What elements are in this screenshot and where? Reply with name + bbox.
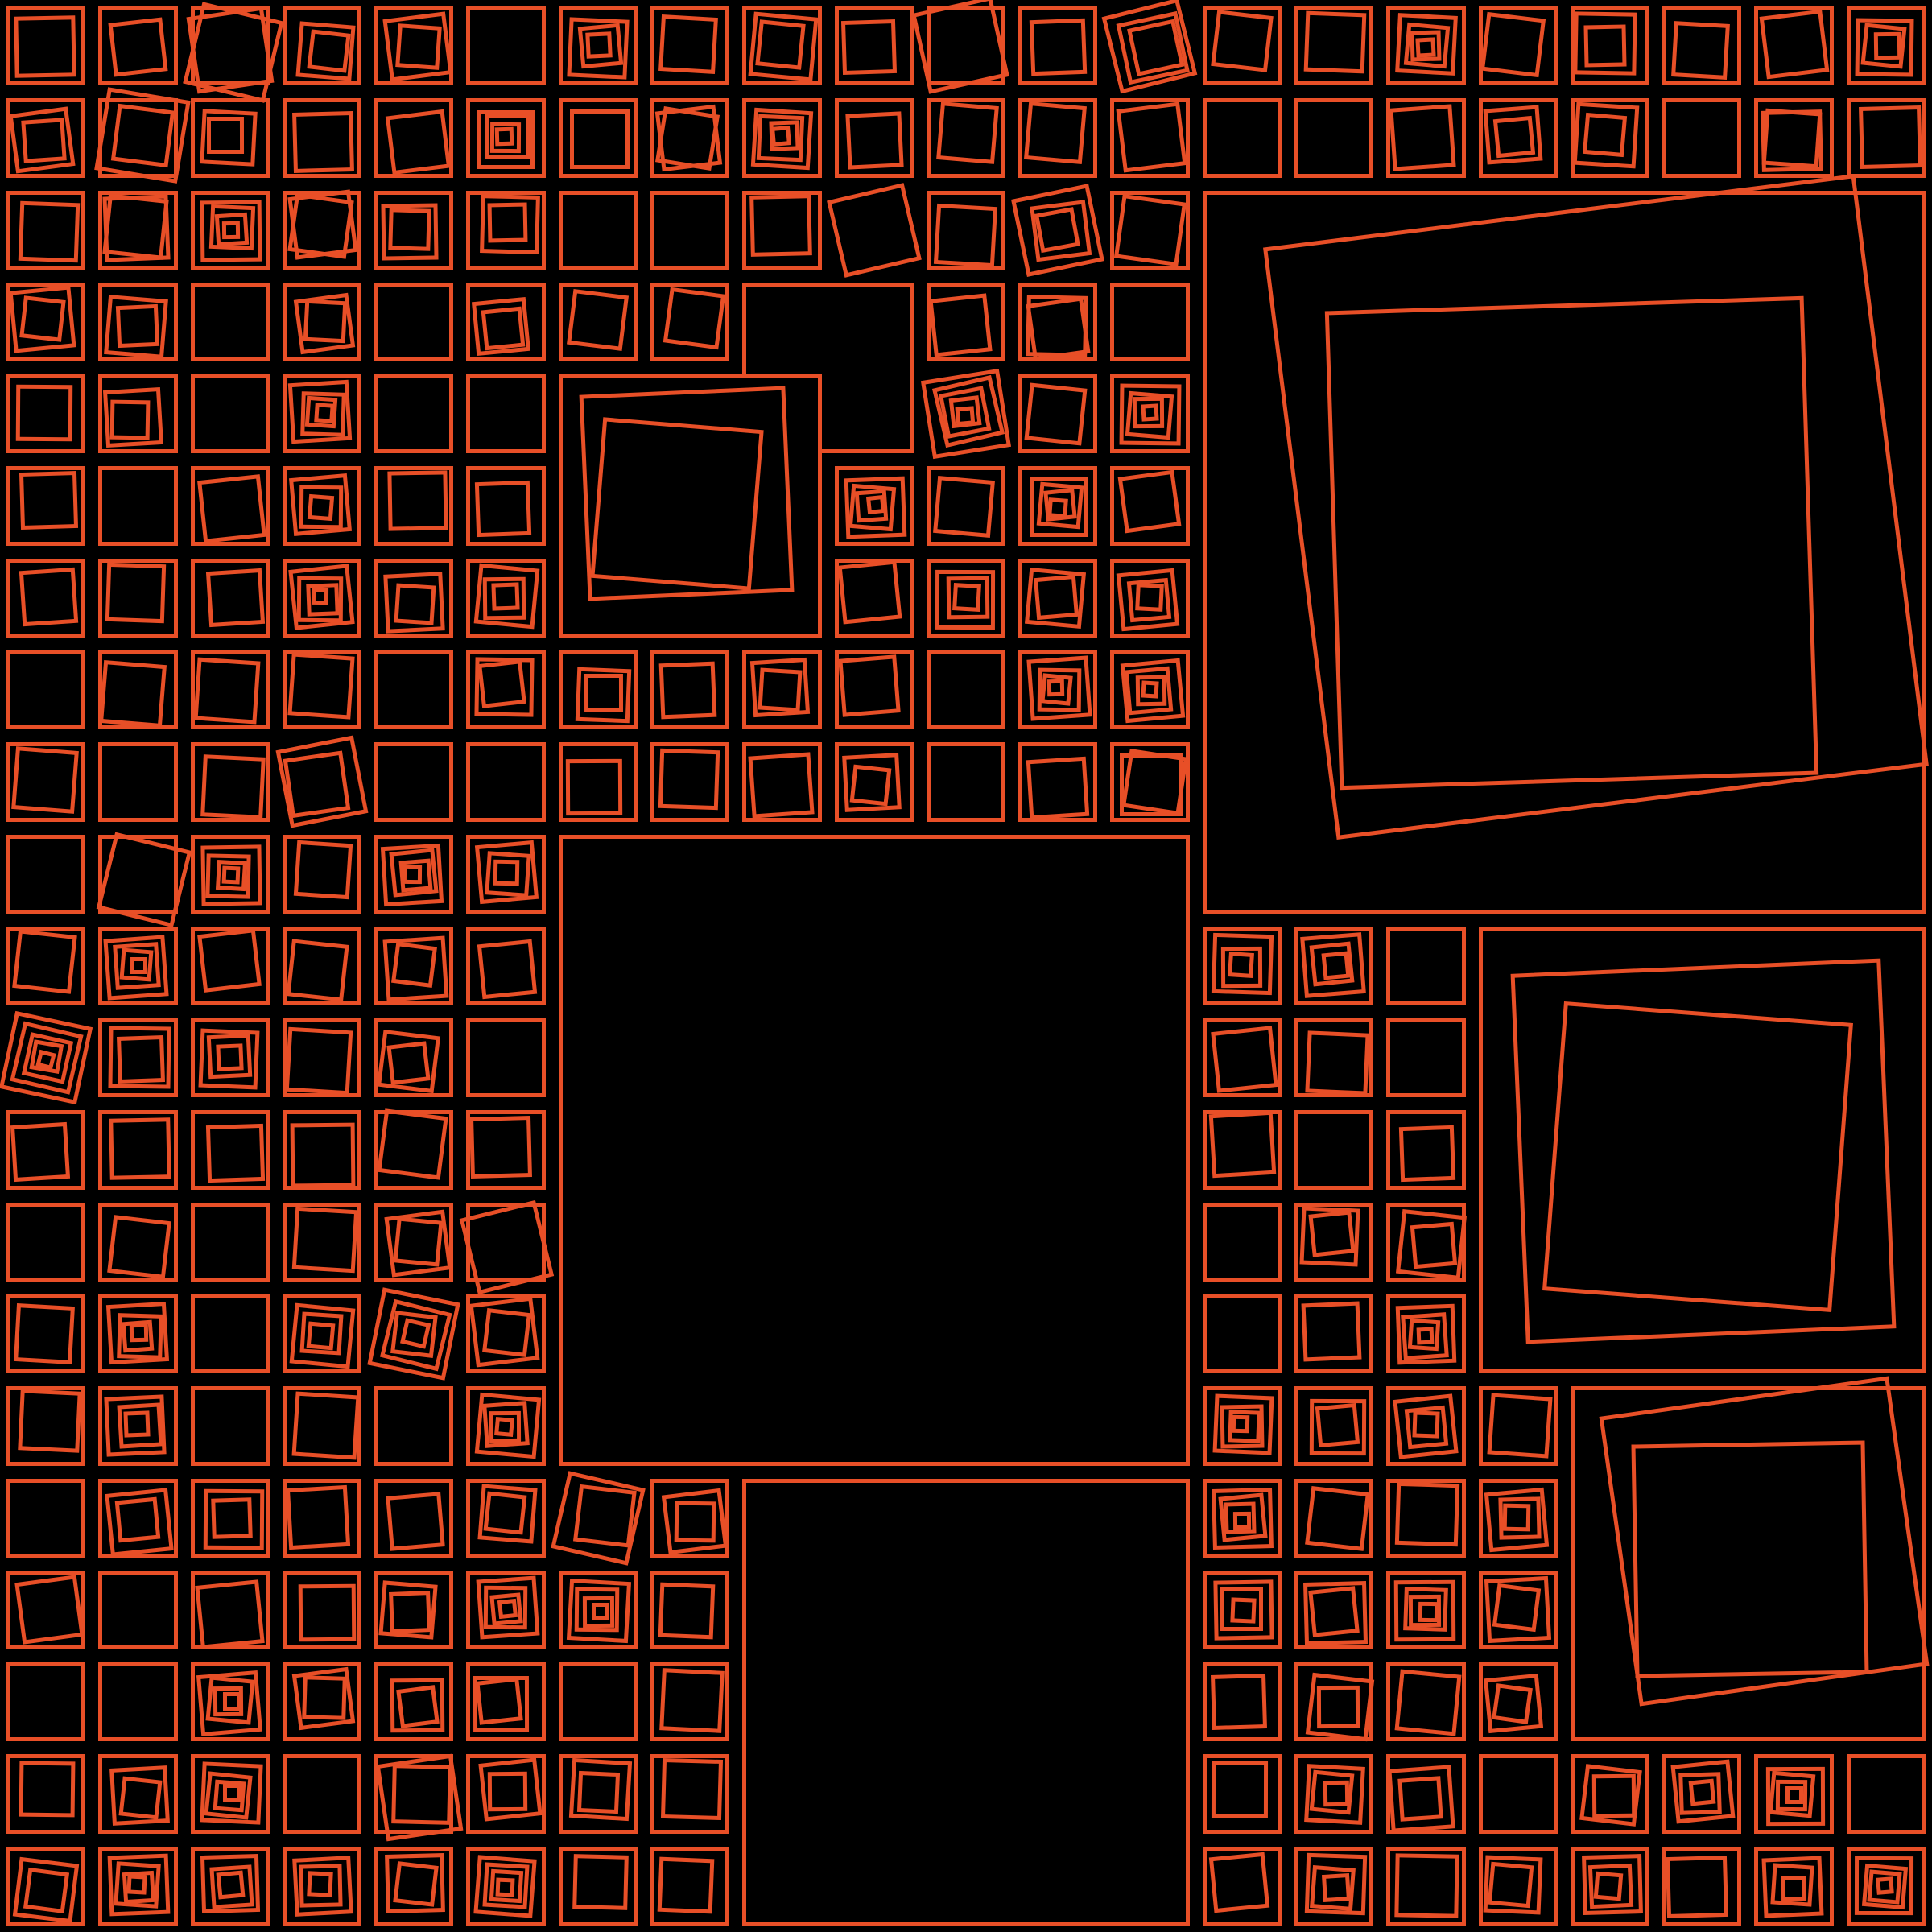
pattern-cell bbox=[1380, 1288, 1472, 1380]
pattern-cell bbox=[460, 460, 551, 551]
pattern-cell bbox=[368, 368, 460, 460]
nested-square-outline bbox=[1397, 1776, 1443, 1821]
pattern-cell bbox=[276, 828, 368, 920]
pattern-cell bbox=[184, 92, 276, 184]
pattern-cell bbox=[1012, 460, 1104, 551]
pattern-cell bbox=[1012, 0, 1104, 92]
nested-square-outline bbox=[674, 1501, 715, 1542]
nested-square-outline bbox=[110, 399, 151, 440]
nested-square-outline bbox=[658, 749, 720, 810]
nested-square-outline bbox=[393, 1217, 443, 1267]
nested-square-outline bbox=[1026, 756, 1089, 819]
pattern-cell bbox=[92, 460, 184, 551]
block-frame-square bbox=[559, 835, 1190, 1466]
pattern-cell bbox=[644, 276, 736, 368]
pattern-cell bbox=[1380, 0, 1472, 92]
pattern-cell bbox=[1104, 644, 1195, 736]
nested-square-outline bbox=[293, 111, 354, 172]
block-inner-square bbox=[590, 417, 763, 590]
nested-square-outline bbox=[130, 957, 148, 975]
pattern-cell bbox=[460, 1380, 551, 1472]
cell-frame-square bbox=[374, 283, 453, 361]
cell-frame-square bbox=[1203, 1294, 1282, 1373]
nested-square-outline bbox=[1594, 1872, 1623, 1901]
nested-square-outline bbox=[1117, 101, 1187, 172]
pattern-cell bbox=[276, 92, 368, 184]
pattern-cell bbox=[460, 920, 551, 1012]
pattern-cell bbox=[184, 184, 276, 276]
pattern-cell bbox=[1288, 1748, 1380, 1839]
pattern-cell bbox=[368, 92, 460, 184]
nested-square-outline bbox=[294, 840, 353, 899]
nested-square-outline bbox=[195, 1579, 265, 1649]
right-middle-block bbox=[1472, 920, 1932, 1380]
nested-square-outline bbox=[1212, 10, 1274, 72]
pattern-cell bbox=[92, 1748, 184, 1839]
nested-square-outline bbox=[306, 1322, 335, 1351]
nested-square-outline bbox=[284, 1027, 352, 1095]
pattern-cell bbox=[184, 828, 276, 920]
nested-square-outline bbox=[748, 753, 814, 819]
pattern-cell bbox=[920, 460, 1012, 551]
nested-square-outline bbox=[109, 1117, 171, 1179]
mid-left-block bbox=[552, 368, 828, 644]
pattern-cell bbox=[184, 1564, 276, 1656]
pattern-cell bbox=[1472, 1748, 1564, 1839]
nested-square-outline bbox=[19, 1761, 76, 1818]
nested-square-outline bbox=[206, 568, 265, 627]
nested-square-outline bbox=[1211, 1674, 1267, 1730]
pattern-cell bbox=[276, 460, 368, 551]
pattern-cell bbox=[644, 92, 736, 184]
cell-frame-square bbox=[466, 6, 545, 85]
pattern-cell bbox=[92, 1380, 184, 1472]
pattern-cell bbox=[552, 184, 644, 276]
nested-square-outline bbox=[1418, 1602, 1438, 1622]
cell-frame-square bbox=[98, 1662, 177, 1741]
pattern-cell bbox=[184, 644, 276, 736]
nested-square-outline bbox=[386, 1492, 445, 1550]
pattern-cell bbox=[1840, 0, 1932, 92]
nested-square-outline bbox=[840, 19, 896, 75]
nested-square-outline bbox=[475, 480, 531, 536]
pattern-cell bbox=[1564, 92, 1656, 184]
nested-square-outline bbox=[846, 111, 905, 170]
pattern-cell bbox=[460, 1288, 551, 1380]
nested-square-outline bbox=[487, 203, 527, 243]
pattern-cell bbox=[1472, 92, 1564, 184]
pattern-cell bbox=[552, 0, 644, 92]
pattern-cell bbox=[184, 1840, 276, 1932]
cell-frame-square bbox=[1386, 927, 1465, 1005]
pattern-cell bbox=[736, 184, 828, 276]
block-inner-square bbox=[1542, 1001, 1853, 1312]
pattern-cell bbox=[1288, 920, 1380, 1012]
pattern-cell bbox=[1104, 368, 1195, 460]
pattern-cell bbox=[92, 1288, 184, 1380]
nested-square-outline bbox=[495, 127, 514, 146]
nested-square-outline bbox=[1034, 207, 1080, 253]
nested-square-outline bbox=[194, 657, 260, 723]
nested-square-outline bbox=[394, 1861, 440, 1907]
pattern-cell bbox=[92, 1104, 184, 1195]
pattern-cell bbox=[920, 552, 1012, 644]
pattern-cell bbox=[1656, 1748, 1748, 1839]
pattern-cell bbox=[1288, 1012, 1380, 1104]
pattern-cell bbox=[276, 184, 368, 276]
cell-frame-square bbox=[191, 1294, 270, 1373]
nested-square-outline bbox=[493, 860, 520, 886]
pattern-cell bbox=[1196, 920, 1288, 1012]
pattern-cell bbox=[0, 828, 92, 920]
pattern-cell bbox=[368, 1656, 460, 1748]
nested-square-outline bbox=[756, 19, 807, 70]
pattern-cell bbox=[92, 736, 184, 828]
pattern-cell bbox=[92, 828, 184, 920]
cell-frame-square bbox=[6, 1203, 85, 1282]
nested-square-outline bbox=[758, 667, 802, 712]
nested-square-outline bbox=[936, 101, 999, 164]
nested-square-outline bbox=[200, 754, 265, 819]
pattern-cell bbox=[460, 92, 551, 184]
pattern-cell bbox=[184, 1472, 276, 1564]
nested-square-outline bbox=[283, 750, 351, 818]
nested-square-outline bbox=[592, 1603, 609, 1620]
pattern-cell bbox=[368, 460, 460, 551]
pattern-cell bbox=[92, 1656, 184, 1748]
nested-square-outline bbox=[1415, 38, 1435, 58]
pattern-cell bbox=[1840, 92, 1932, 184]
nested-square-outline bbox=[838, 654, 900, 716]
pattern-cell bbox=[1748, 1748, 1839, 1839]
pattern-cell bbox=[1380, 1104, 1472, 1195]
pattern-cell bbox=[368, 1196, 460, 1288]
nested-square-outline bbox=[1583, 25, 1626, 68]
pattern-cell bbox=[184, 276, 276, 368]
pattern-cell bbox=[644, 1748, 736, 1839]
pattern-cell bbox=[1380, 920, 1472, 1012]
nested-square-outline bbox=[212, 1498, 253, 1539]
nested-square-outline bbox=[117, 1035, 165, 1084]
nested-square-outline bbox=[10, 1122, 70, 1182]
pattern-cell bbox=[368, 1564, 460, 1656]
nested-square-outline bbox=[1304, 10, 1366, 72]
pattern-cell bbox=[828, 736, 920, 828]
nested-square-outline bbox=[217, 1044, 245, 1072]
pattern-cell bbox=[368, 736, 460, 828]
nested-square-outline bbox=[934, 204, 997, 267]
nested-square-outline bbox=[1305, 1486, 1370, 1551]
nested-square-outline bbox=[186, 6, 274, 93]
pattern-cell bbox=[552, 1748, 644, 1839]
center-block bbox=[552, 828, 1196, 1472]
nested-square-outline bbox=[391, 942, 437, 988]
pattern-cell bbox=[552, 92, 644, 184]
nested-square-outline bbox=[1302, 1302, 1362, 1362]
pattern-cell bbox=[1748, 92, 1839, 184]
pattern-cell bbox=[1196, 1564, 1288, 1656]
nested-square-outline bbox=[288, 192, 354, 258]
pattern-cell bbox=[460, 1564, 551, 1656]
pattern-cell bbox=[276, 1656, 368, 1748]
pattern-cell bbox=[1380, 1564, 1472, 1656]
pattern-cell bbox=[0, 1472, 92, 1564]
pattern-cell bbox=[184, 1656, 276, 1748]
nested-square-outline bbox=[1492, 1683, 1533, 1724]
nested-square-outline bbox=[1592, 1774, 1636, 1818]
nested-square-outline bbox=[1487, 1393, 1552, 1458]
pattern-cell bbox=[276, 920, 368, 1012]
nested-square-outline bbox=[659, 1668, 724, 1733]
nested-square-outline bbox=[1309, 1210, 1356, 1257]
pattern-cell bbox=[92, 1196, 184, 1288]
cell-frame-square bbox=[927, 650, 1005, 729]
pattern-cell bbox=[1104, 460, 1195, 551]
pattern-cell bbox=[552, 644, 644, 736]
pattern-cell bbox=[1288, 1104, 1380, 1195]
cell-frame-square bbox=[1294, 1110, 1373, 1189]
pattern-cell bbox=[1104, 276, 1195, 368]
pattern-cell bbox=[644, 644, 736, 736]
block-frame-square bbox=[742, 1479, 1189, 1926]
pattern-cell bbox=[1196, 1380, 1288, 1472]
pattern-cell bbox=[644, 736, 736, 828]
nested-square-outline bbox=[14, 1575, 84, 1644]
nested-square-outline bbox=[114, 1496, 160, 1542]
pattern-cell bbox=[276, 644, 368, 736]
pattern-cell bbox=[460, 1656, 551, 1748]
nested-square-outline bbox=[663, 287, 725, 349]
nested-square-outline bbox=[655, 105, 720, 170]
pattern-cell bbox=[1472, 1564, 1564, 1656]
cell-frame-square bbox=[1110, 283, 1189, 361]
pattern-cell bbox=[92, 552, 184, 644]
pattern-cell bbox=[1196, 1196, 1288, 1288]
nested-square-outline bbox=[197, 474, 266, 543]
pattern-cell bbox=[276, 1840, 368, 1932]
nested-square-outline bbox=[23, 1867, 70, 1913]
pattern-cell bbox=[1656, 1840, 1748, 1932]
nested-square-outline bbox=[1416, 1327, 1434, 1345]
pattern-cell bbox=[1472, 1380, 1564, 1472]
nested-square-outline bbox=[222, 1783, 241, 1802]
pattern-cell bbox=[268, 728, 376, 836]
pattern-cell bbox=[368, 1380, 460, 1472]
pattern-cell bbox=[0, 1196, 92, 1288]
nested-square-outline bbox=[1666, 1856, 1728, 1918]
nested-square-outline bbox=[1228, 952, 1254, 978]
nested-square-outline bbox=[1322, 1873, 1351, 1902]
pattern-cell bbox=[920, 736, 1012, 828]
pattern-cell bbox=[276, 1380, 368, 1472]
pattern-cell bbox=[92, 0, 184, 92]
pattern-cell bbox=[0, 736, 92, 828]
nested-square-outline bbox=[302, 1675, 347, 1720]
nested-square-outline bbox=[866, 494, 885, 514]
cell-frame-square bbox=[1386, 1018, 1465, 1097]
pattern-cell bbox=[1656, 92, 1748, 184]
nested-square-outline bbox=[217, 1871, 246, 1900]
pattern-cell bbox=[1380, 92, 1472, 184]
artwork-canvas bbox=[0, 0, 1932, 1932]
pattern-cell bbox=[552, 1656, 644, 1748]
pattern-cell bbox=[368, 644, 460, 736]
nested-square-outline bbox=[395, 24, 441, 70]
pattern-cell bbox=[368, 276, 460, 368]
nested-square-outline bbox=[469, 1116, 532, 1179]
cell-frame-square bbox=[927, 742, 1005, 821]
pattern-cell bbox=[460, 368, 551, 460]
nested-square-outline bbox=[572, 1854, 629, 1910]
nested-square-outline bbox=[1395, 1482, 1460, 1547]
pattern-cell bbox=[184, 736, 276, 828]
cell-frame-square bbox=[283, 1754, 361, 1833]
cell-frame-square bbox=[374, 374, 453, 453]
nested-square-outline bbox=[952, 583, 981, 612]
pattern-cell bbox=[184, 368, 276, 460]
pattern-cell bbox=[276, 1196, 368, 1288]
pattern-cell bbox=[184, 920, 276, 1012]
pattern-cell bbox=[92, 276, 184, 368]
pattern-cell bbox=[276, 1012, 368, 1104]
pattern-cell bbox=[1380, 1656, 1472, 1748]
nested-square-outline bbox=[658, 661, 716, 719]
nested-square-outline bbox=[1876, 1876, 1894, 1895]
nested-square-outline bbox=[929, 294, 993, 357]
nested-square-outline bbox=[400, 1318, 431, 1348]
pattern-cell bbox=[920, 92, 1012, 184]
pattern-cell bbox=[543, 1463, 653, 1573]
nested-square-outline bbox=[223, 1692, 242, 1711]
nested-square-outline bbox=[287, 939, 349, 1001]
cell-frame-square bbox=[1479, 1754, 1558, 1833]
nested-square-outline bbox=[1503, 1504, 1531, 1532]
pattern-cell bbox=[0, 92, 92, 184]
bottom-right-block bbox=[1564, 1380, 1932, 1748]
nested-square-outline bbox=[292, 1207, 358, 1273]
nested-square-outline bbox=[1410, 1221, 1457, 1269]
pattern-cell bbox=[368, 184, 460, 276]
nested-square-outline bbox=[1232, 1415, 1250, 1434]
nested-square-outline bbox=[107, 1215, 171, 1279]
nested-square-outline bbox=[1208, 1852, 1269, 1913]
pattern-cell bbox=[644, 1656, 736, 1748]
nested-square-outline bbox=[222, 221, 240, 239]
pattern-cell bbox=[1196, 92, 1288, 184]
pattern-cell bbox=[368, 552, 460, 644]
nested-square-outline bbox=[475, 1677, 522, 1724]
pattern-cell bbox=[368, 828, 460, 920]
pattern-cell bbox=[1380, 1012, 1472, 1104]
pattern-cell bbox=[460, 828, 551, 920]
pattern-cell bbox=[0, 1840, 92, 1932]
pattern-cell bbox=[184, 552, 276, 644]
pattern-cell bbox=[736, 0, 828, 92]
pattern-cell bbox=[552, 1840, 644, 1932]
pattern-cell bbox=[1012, 368, 1104, 460]
pattern-cell bbox=[0, 368, 92, 460]
cell-frame-square bbox=[191, 1386, 270, 1465]
pattern-cell bbox=[1380, 1472, 1472, 1564]
cell-frame-square bbox=[1294, 98, 1373, 177]
pattern-cell bbox=[552, 1564, 644, 1656]
nested-square-outline bbox=[388, 470, 448, 530]
pattern-cell bbox=[92, 368, 184, 460]
nested-square-outline bbox=[1029, 19, 1086, 76]
nested-square-outline bbox=[13, 930, 77, 994]
top-right-block bbox=[1196, 184, 1932, 920]
pattern-cell bbox=[460, 1748, 551, 1839]
nested-square-outline bbox=[1323, 1781, 1349, 1807]
nested-square-outline bbox=[1026, 296, 1090, 361]
nested-square-outline bbox=[584, 674, 623, 712]
pattern-cell bbox=[368, 1012, 460, 1104]
cell-frame-square bbox=[559, 191, 638, 270]
pattern-cell bbox=[1288, 1840, 1380, 1932]
nested-square-outline bbox=[127, 1874, 147, 1894]
cell-frame-square bbox=[1847, 1754, 1926, 1833]
pattern-cell bbox=[736, 92, 828, 184]
nested-square-outline bbox=[20, 295, 66, 341]
pattern-cell bbox=[92, 184, 184, 276]
pattern-cell bbox=[460, 1104, 551, 1195]
nested-square-outline bbox=[770, 126, 791, 147]
cell-frame-square bbox=[1203, 98, 1282, 177]
pattern-cell bbox=[0, 276, 92, 368]
pattern-cell bbox=[736, 736, 828, 828]
pattern-cell bbox=[1380, 1380, 1472, 1472]
nested-square-outline bbox=[14, 15, 76, 77]
nested-square-outline bbox=[1233, 1512, 1251, 1529]
nested-square-outline bbox=[1315, 1403, 1360, 1448]
nested-square-outline bbox=[1047, 497, 1068, 518]
nested-square-outline bbox=[484, 1491, 527, 1534]
nested-square-outline bbox=[1321, 951, 1350, 980]
pattern-cell bbox=[1196, 1656, 1288, 1748]
nested-square-outline bbox=[386, 1041, 430, 1084]
nested-square-outline bbox=[1688, 1779, 1715, 1806]
nested-square-outline bbox=[312, 588, 329, 605]
nested-square-outline bbox=[1412, 1410, 1439, 1438]
pattern-cell bbox=[1748, 0, 1839, 92]
nested-square-outline bbox=[1395, 1670, 1462, 1736]
pattern-cell bbox=[1288, 1472, 1380, 1564]
pattern-cell bbox=[552, 736, 644, 828]
pattern-cell bbox=[276, 0, 368, 92]
nested-square-outline bbox=[570, 109, 629, 168]
nested-square-outline bbox=[303, 299, 348, 344]
pattern-cell bbox=[0, 1564, 92, 1656]
nested-square-outline bbox=[658, 1582, 714, 1638]
pattern-cell bbox=[819, 175, 929, 285]
nested-square-outline bbox=[1394, 1854, 1459, 1918]
nested-square-outline bbox=[658, 14, 718, 74]
pattern-cell bbox=[0, 920, 92, 1012]
nested-square-outline bbox=[1114, 193, 1187, 266]
nested-square-outline bbox=[488, 1772, 528, 1812]
pattern-cell bbox=[460, 644, 551, 736]
pattern-cell bbox=[920, 276, 1012, 368]
pattern-cell bbox=[276, 1564, 368, 1656]
nested-square-outline bbox=[1487, 1862, 1534, 1909]
nested-square-outline bbox=[102, 193, 168, 259]
nested-square-outline bbox=[1760, 10, 1830, 80]
pattern-cell bbox=[0, 1748, 92, 1839]
pattern-cell bbox=[1288, 1380, 1380, 1472]
nested-square-outline bbox=[11, 746, 79, 814]
nested-square-outline bbox=[130, 1323, 148, 1342]
pattern-cell bbox=[184, 460, 276, 551]
